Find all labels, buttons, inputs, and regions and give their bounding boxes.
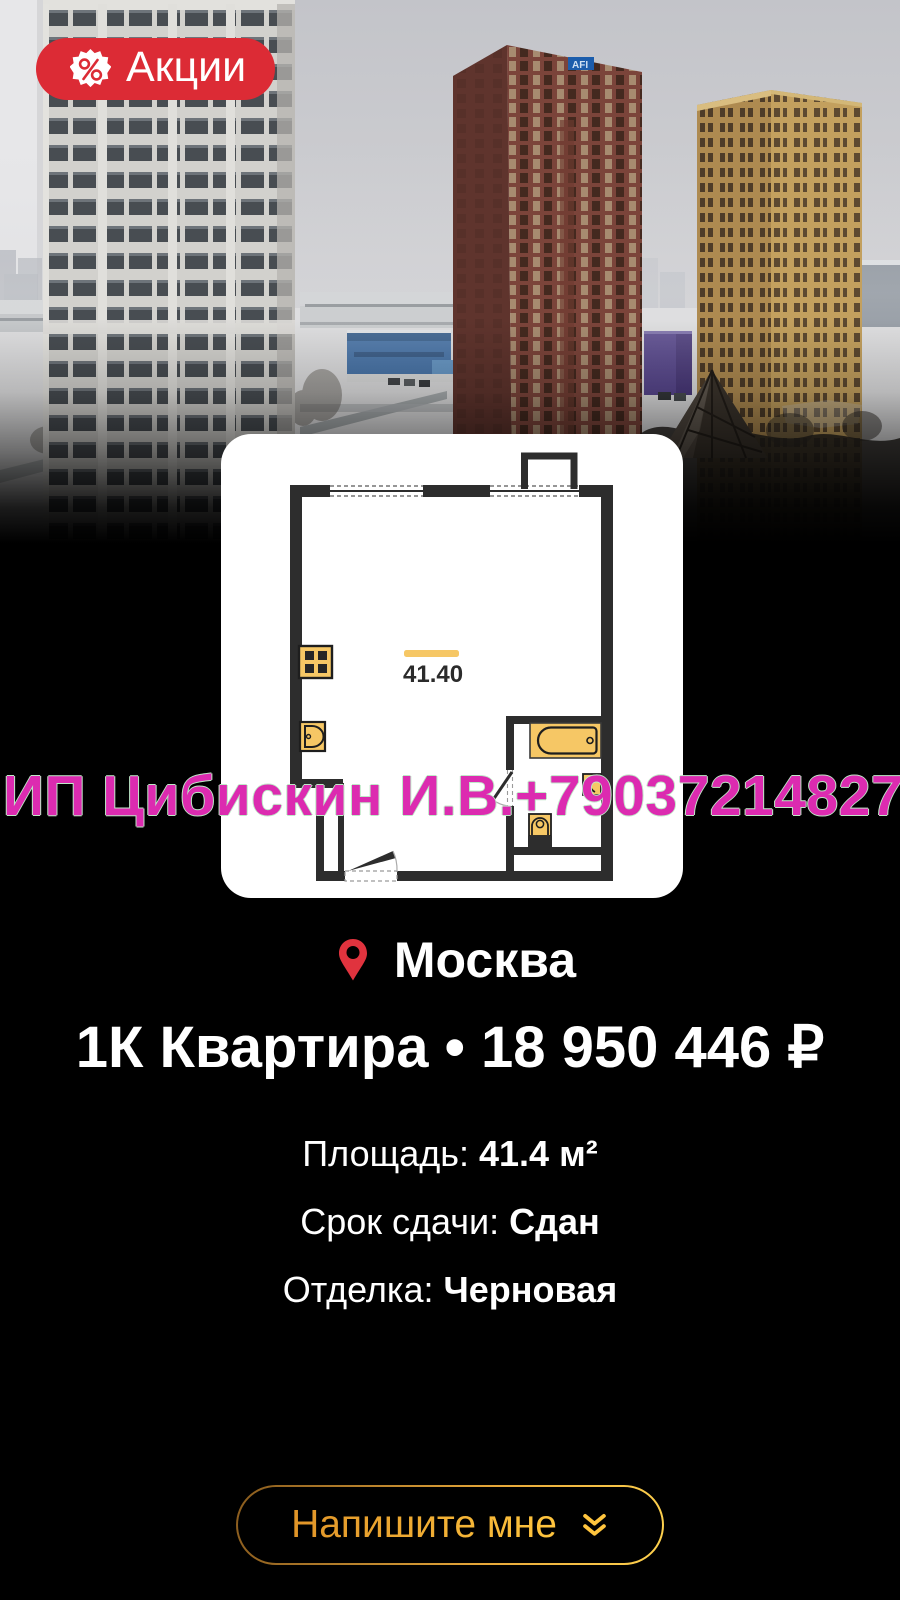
svg-text:41.40: 41.40 (403, 661, 463, 688)
svg-text:AFI: AFI (572, 60, 588, 71)
